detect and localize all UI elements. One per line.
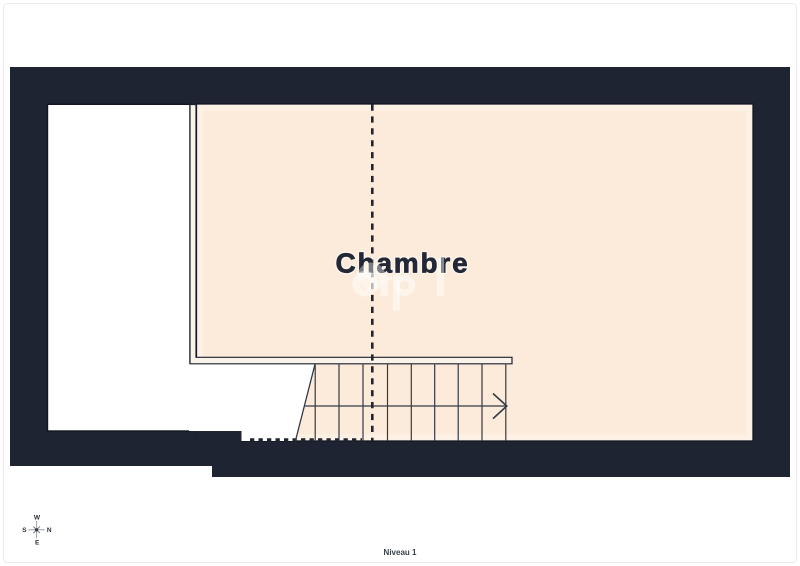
svg-text:N: N (47, 527, 52, 534)
svg-text:S: S (22, 527, 27, 534)
svg-text:W: W (34, 514, 41, 521)
svg-text:Niveau 1: Niveau 1 (384, 548, 417, 557)
svg-text:Chambre: Chambre (336, 248, 470, 279)
svg-text:E: E (35, 540, 40, 547)
